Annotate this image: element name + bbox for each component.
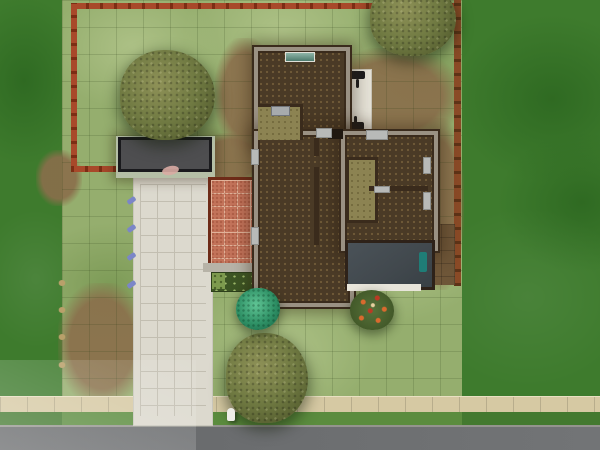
window: [423, 157, 431, 174]
verge-grass-offlot: [462, 412, 600, 425]
window: [316, 128, 332, 138]
grass-tuft[interactable]: [58, 334, 66, 340]
interior-wall: [314, 138, 319, 156]
driveway-tiles: [140, 184, 206, 416]
house-wing-main[interactable]: [254, 131, 354, 307]
window-teal: [285, 52, 315, 62]
grill-leg: [354, 116, 357, 123]
kitchen-counter[interactable]: [271, 106, 290, 116]
dark-floored-room[interactable]: [345, 240, 435, 290]
teal-fixture[interactable]: [419, 252, 427, 272]
window: [366, 130, 388, 140]
garden-plot-section: [212, 273, 225, 289]
fire-hydrant[interactable]: [227, 408, 235, 421]
grill[interactable]: [350, 71, 365, 79]
tree[interactable]: [226, 333, 308, 423]
grill-leg: [356, 79, 359, 88]
grass-tuft[interactable]: [58, 362, 66, 368]
porch-step: [347, 284, 421, 291]
road: [0, 425, 600, 450]
driveway[interactable]: [133, 172, 213, 426]
grass-tuft[interactable]: [58, 280, 66, 286]
window: [251, 149, 259, 165]
window: [423, 192, 431, 210]
interior-wall: [314, 167, 319, 245]
fence-left[interactable]: [71, 3, 77, 172]
teal-shrub[interactable]: [236, 288, 280, 330]
grill[interactable]: [348, 122, 364, 130]
lot-view: [0, 0, 600, 450]
grass-tuft[interactable]: [58, 307, 66, 313]
verge-grass-offlot: [0, 412, 62, 425]
tree[interactable]: [120, 50, 215, 140]
flowering-shrub[interactable]: [350, 290, 394, 330]
window: [374, 186, 390, 193]
fence-right[interactable]: [454, 0, 461, 286]
window: [251, 227, 259, 245]
garage[interactable]: [116, 136, 215, 178]
